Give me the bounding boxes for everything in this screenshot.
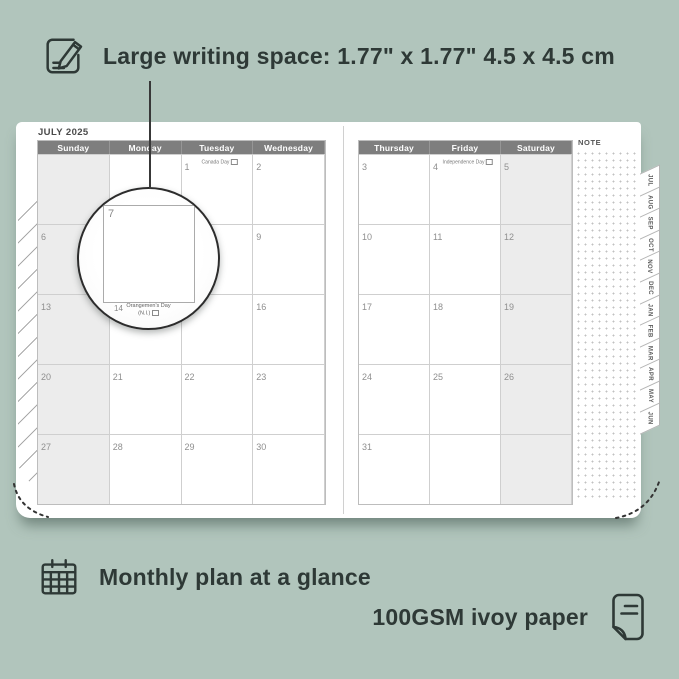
monthly-feature-text: Monthly plan at a glance	[99, 564, 371, 591]
day-header-sunday: Sunday	[38, 141, 110, 154]
calendar-cell: 23	[253, 364, 325, 434]
date-number: 29	[185, 442, 195, 452]
calendar-cell: 31	[359, 434, 430, 504]
date-number: 19	[504, 302, 514, 312]
date-number: 2	[256, 162, 261, 172]
calendar-cell: 11	[430, 224, 501, 294]
magnified-day-cell: 7	[103, 205, 195, 303]
date-number: 28	[113, 442, 123, 452]
calendar-cell: 17	[359, 294, 430, 364]
magnified-holiday-line2: (N.I.)	[79, 310, 218, 318]
calendar-cell: 29	[182, 434, 254, 504]
calendar-cell: 16	[253, 294, 325, 364]
calendar-cell: 2	[253, 154, 325, 224]
calendar-cell	[430, 434, 501, 504]
date-number: 3	[362, 162, 367, 172]
holiday-label: Canada Day	[202, 159, 238, 165]
note-dot-grid	[575, 150, 639, 502]
date-number: 5	[504, 162, 509, 172]
date-number: 4	[433, 162, 438, 172]
date-number: 20	[41, 372, 51, 382]
day-header-thursday: Thursday	[359, 141, 430, 154]
callout-connector-line	[149, 81, 151, 189]
flag-icon	[231, 159, 238, 165]
calendar-cell: 28	[110, 434, 182, 504]
month-tabs: JULAUGSEPOCTNOVDECJANFEBMARAPRMAYJUN	[640, 170, 660, 429]
holiday-label: Independence Day	[443, 159, 493, 165]
date-number: 25	[433, 372, 443, 382]
date-number: 31	[362, 442, 372, 452]
calendar-cell: 21	[110, 364, 182, 434]
calendar-cell: 20	[38, 364, 110, 434]
day-header-monday: Monday	[110, 141, 182, 154]
calendar-cell: 5	[501, 154, 572, 224]
note-column-label: NOTE	[578, 138, 601, 147]
calendar-cell: 12	[501, 224, 572, 294]
magnified-holiday-line1: Orangemen's Day	[79, 303, 218, 310]
day-header-wednesday: Wednesday	[253, 141, 325, 154]
date-number: 6	[41, 232, 46, 242]
day-header-tuesday: Tuesday	[182, 141, 254, 154]
paper-feature-callout: 100GSM ivoy paper	[0, 591, 648, 643]
right-page-calendar-grid: ThursdayFridaySaturday34Independence Day…	[358, 140, 573, 505]
calendar-cell: 19	[501, 294, 572, 364]
calendar-cell: 25	[430, 364, 501, 434]
calendar-cell	[501, 434, 572, 504]
calendar-cell: 27	[38, 434, 110, 504]
flag-icon	[486, 159, 493, 165]
planner-product-image: Large writing space: 1.77" x 1.77" 4.5 x…	[0, 0, 679, 679]
calendar-cell: 3	[359, 154, 430, 224]
flag-icon	[152, 310, 159, 316]
date-number: 21	[113, 372, 123, 382]
magnified-date: 7	[108, 208, 114, 220]
calendar-cell: 9	[253, 224, 325, 294]
paper-feature-text: 100GSM ivoy paper	[372, 604, 588, 631]
date-number: 11	[433, 232, 442, 242]
planner-spread: JULY 2025 SundayMondayTuesdayWednesday1C…	[16, 122, 641, 518]
date-number: 30	[256, 442, 266, 452]
date-number: 16	[256, 302, 266, 312]
date-number: 26	[504, 372, 514, 382]
date-number: 9	[256, 232, 261, 242]
calendar-cell: 22	[182, 364, 254, 434]
magnified-next-row: 14 Orangemen's Day (N.I.)	[79, 303, 218, 318]
calendar-cell: 4Independence Day	[430, 154, 501, 224]
calendar-cell: 18	[430, 294, 501, 364]
magnifier-circle: 7 14 Orangemen's Day (N.I.)	[77, 187, 220, 330]
top-feature-callout: Large writing space: 1.77" x 1.77" 4.5 x…	[40, 32, 615, 80]
calendar-cell: 26	[501, 364, 572, 434]
date-number: 10	[362, 232, 372, 242]
date-number: 12	[504, 232, 514, 242]
date-number: 17	[362, 302, 372, 312]
magnified-next-date: 14	[114, 304, 123, 315]
top-feature-text: Large writing space: 1.77" x 1.77" 4.5 x…	[103, 43, 615, 70]
date-number: 13	[41, 302, 51, 312]
calendar-cell: 30	[253, 434, 325, 504]
date-number: 1	[185, 162, 190, 172]
day-header-friday: Friday	[430, 141, 501, 154]
day-header-saturday: Saturday	[501, 141, 572, 154]
date-number: 23	[256, 372, 266, 382]
spread-spine-line	[343, 126, 344, 514]
calendar-cell: 10	[359, 224, 430, 294]
month-title: JULY 2025	[38, 127, 89, 138]
paper-sheet-icon	[608, 591, 648, 643]
pencil-note-icon	[40, 32, 86, 80]
calendar-cell: 24	[359, 364, 430, 434]
date-number: 24	[362, 372, 372, 382]
date-number: 27	[41, 442, 51, 452]
date-number: 18	[433, 302, 443, 312]
date-number: 22	[185, 372, 195, 382]
